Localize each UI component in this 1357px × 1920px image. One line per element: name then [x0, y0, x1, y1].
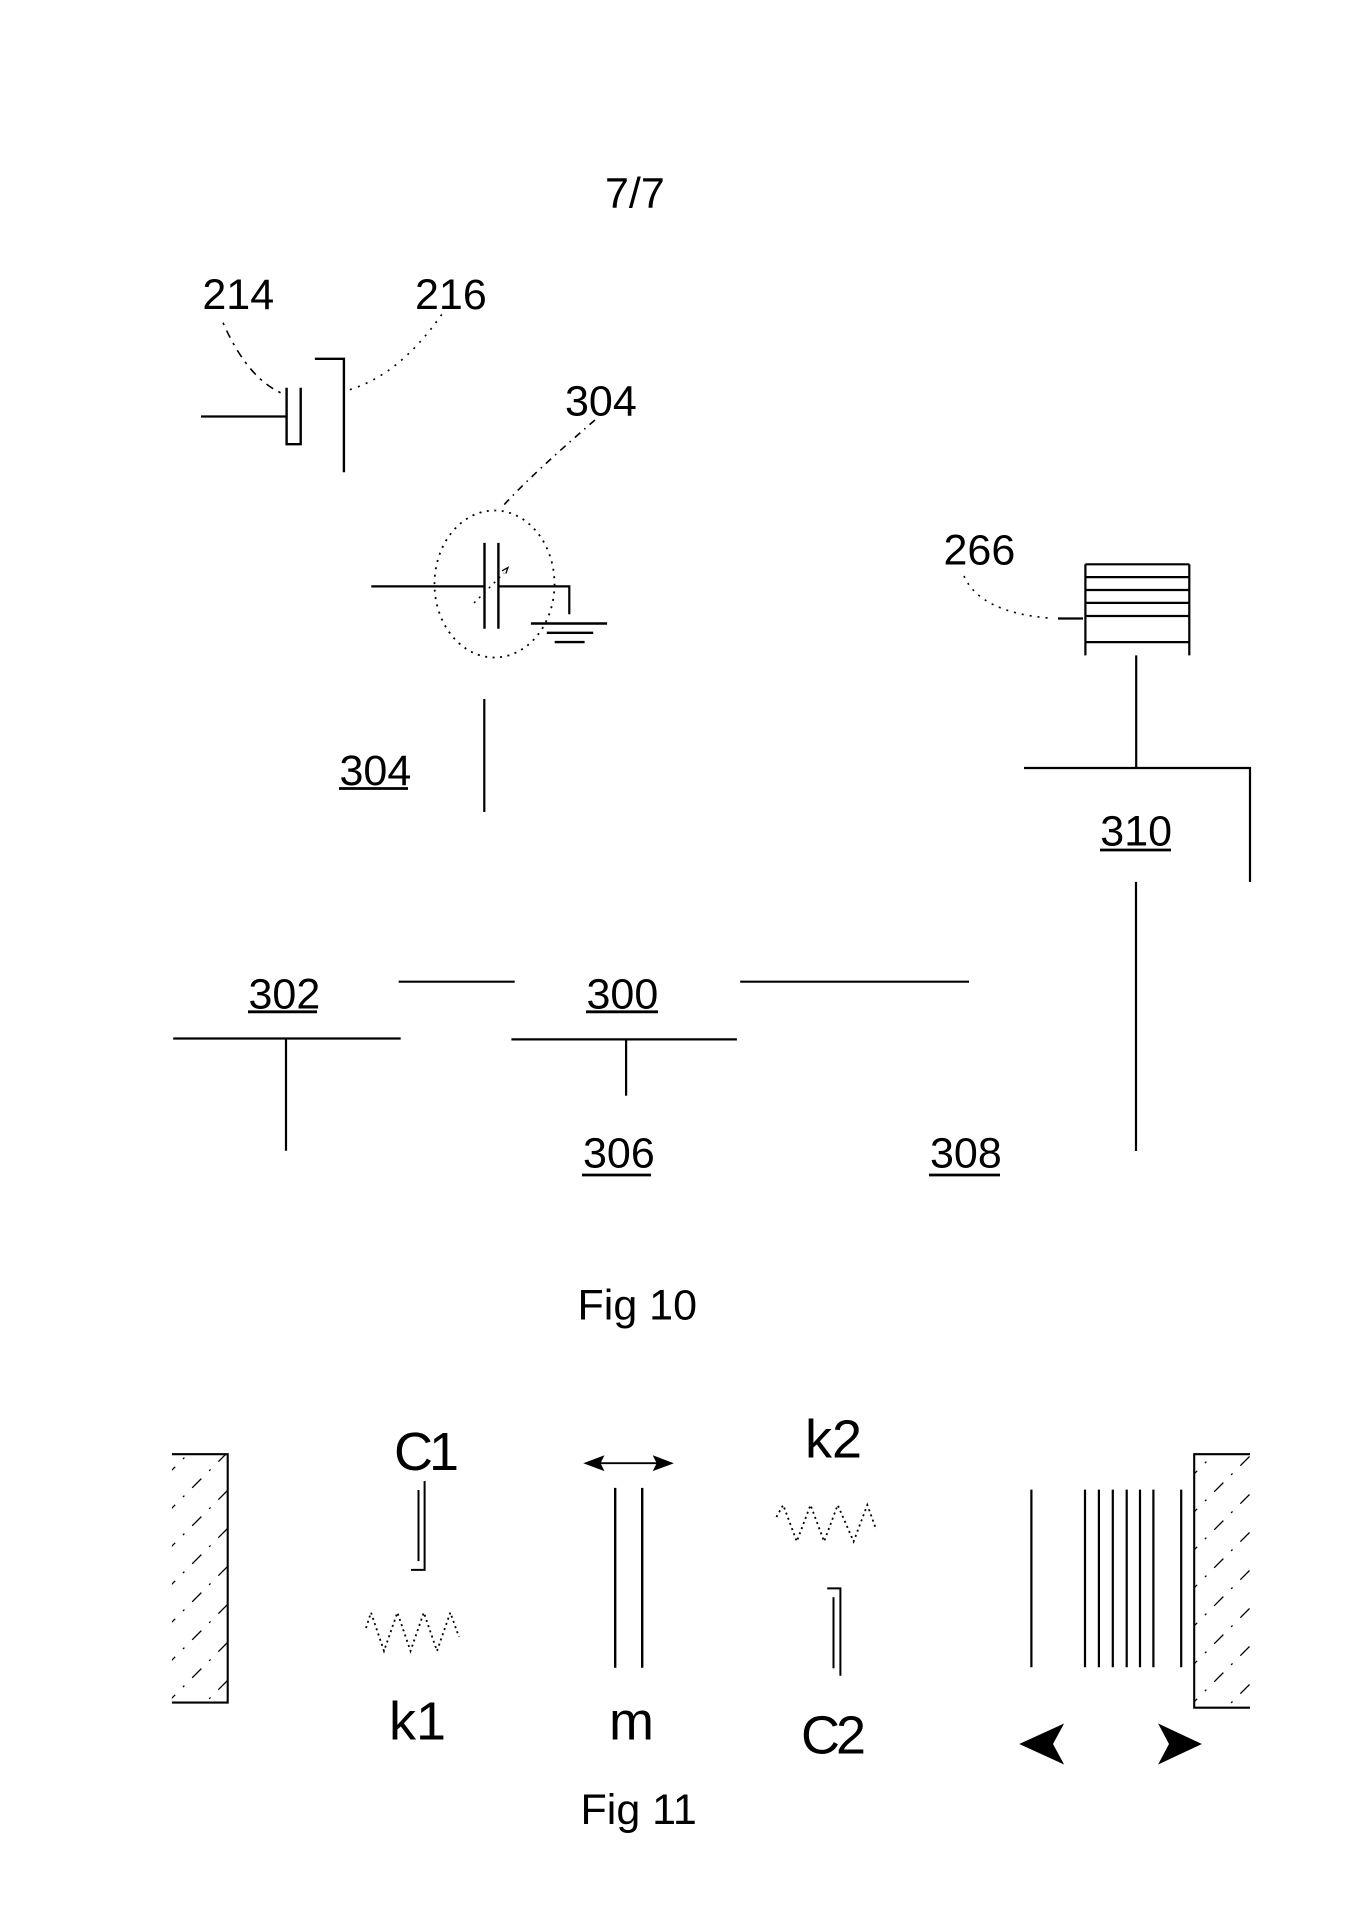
svg-text:306: 306: [583, 1130, 655, 1178]
svg-text:214: 214: [202, 271, 274, 319]
svg-text:216: 216: [415, 271, 487, 319]
svg-text:k1: k1: [389, 1692, 446, 1752]
svg-text:266: 266: [944, 527, 1016, 575]
svg-text:Fig 11: Fig 11: [581, 1786, 697, 1834]
svg-text:7/7: 7/7: [605, 169, 665, 217]
svg-text:m: m: [609, 1692, 654, 1752]
svg-text:C1: C1: [394, 1422, 457, 1482]
svg-text:308: 308: [930, 1130, 1002, 1178]
svg-text:310: 310: [1100, 808, 1172, 856]
svg-text:k2: k2: [805, 1410, 862, 1470]
svg-text:304: 304: [565, 377, 637, 425]
svg-text:Fig 10: Fig 10: [578, 1282, 698, 1330]
svg-text:C2: C2: [801, 1706, 864, 1766]
